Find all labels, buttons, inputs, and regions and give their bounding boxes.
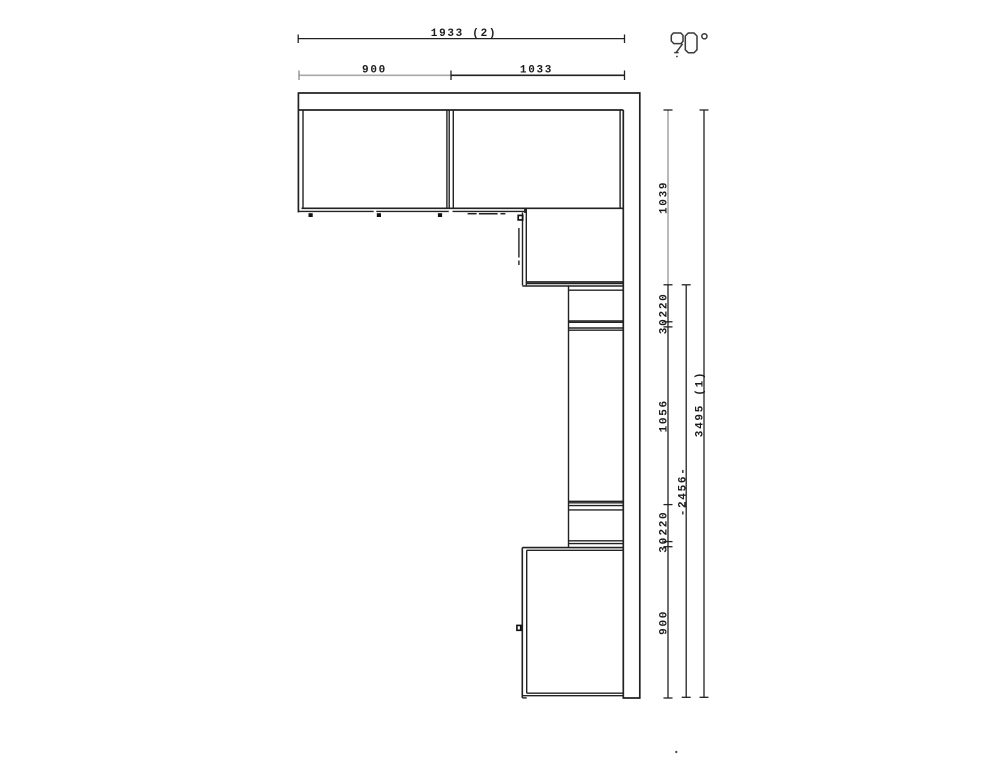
svg-text:1033: 1033 [520,64,553,76]
svg-text:1056: 1056 [659,399,671,432]
svg-text:1039: 1039 [659,181,671,214]
svg-text:220: 220 [659,293,671,318]
svg-text:30: 30 [659,536,671,553]
svg-text:1933 (2): 1933 (2) [431,28,497,40]
svg-text:30: 30 [659,318,671,335]
svg-text:900: 900 [362,64,387,76]
svg-text:3495 (1): 3495 (1) [694,371,706,437]
svg-text:-2456-: -2456- [678,466,690,516]
svg-text:900: 900 [659,610,671,635]
svg-text:220: 220 [659,511,671,536]
